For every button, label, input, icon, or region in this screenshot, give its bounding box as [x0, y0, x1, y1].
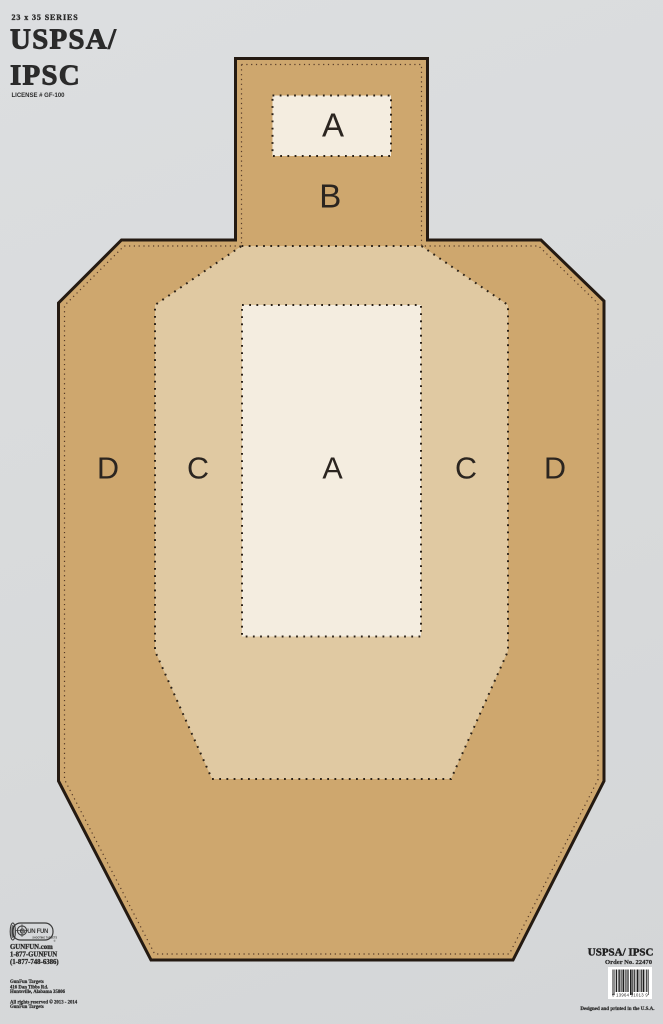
svg-text:G: G	[20, 926, 26, 935]
svg-text:C: C	[455, 452, 477, 486]
svg-text:D: D	[544, 452, 566, 486]
svg-text:(1-877-748-6386): (1-877-748-6386)	[10, 959, 59, 966]
svg-text:A: A	[322, 452, 343, 486]
svg-text:Designed and printed in the U.: Designed and printed in the U.S.A.	[580, 1007, 655, 1012]
svg-text:B: B	[319, 178, 341, 215]
svg-text:1-877-GUNFUN: 1-877-GUNFUN	[10, 951, 57, 958]
svg-text:UN FUN: UN FUN	[27, 929, 48, 935]
svg-text:LICENSE # GF-100: LICENSE # GF-100	[12, 93, 66, 99]
svg-text:Order No. 22470: Order No. 22470	[605, 959, 653, 966]
svg-text:IPSC: IPSC	[10, 60, 81, 92]
svg-text:D: D	[97, 452, 119, 486]
svg-text:0 13964 51013 9: 0 13964 51013 9	[612, 993, 648, 998]
svg-text:GUNFUN.com: GUNFUN.com	[10, 944, 53, 951]
svg-text:GunFun Targets: GunFun Targets	[10, 1005, 44, 1010]
svg-text:C: C	[187, 452, 209, 486]
svg-text:USPSA/: USPSA/	[10, 24, 117, 56]
svg-text:23 x 35 SERIES: 23 x 35 SERIES	[12, 13, 79, 22]
svg-text:USPSA/ IPSC: USPSA/ IPSC	[588, 947, 654, 959]
svg-text:Huntsville, Alabama 35806: Huntsville, Alabama 35806	[10, 990, 66, 995]
svg-text:A: A	[322, 107, 344, 144]
